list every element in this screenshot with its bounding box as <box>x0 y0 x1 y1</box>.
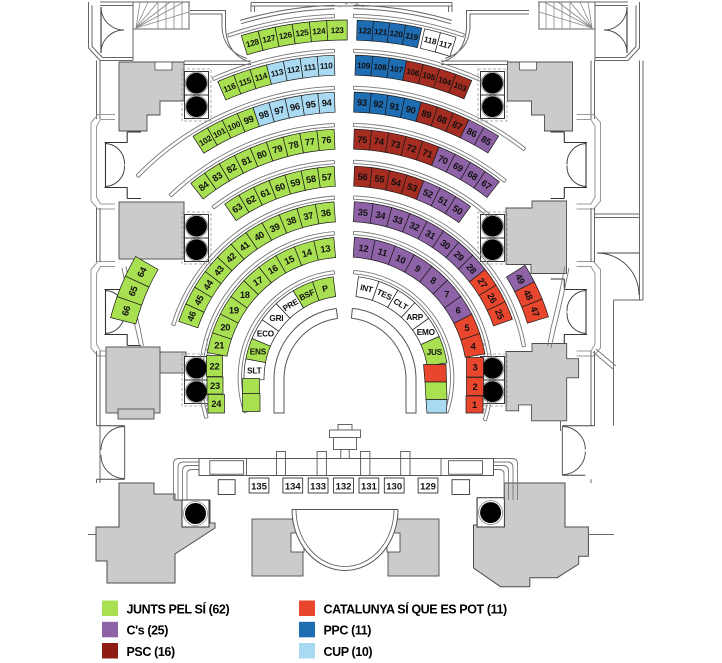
svg-text:JUS: JUS <box>427 348 443 357</box>
svg-text:110: 110 <box>320 61 334 71</box>
svg-text:75: 75 <box>357 135 368 146</box>
svg-text:ENS: ENS <box>250 347 267 356</box>
svg-text:ECO: ECO <box>257 330 275 339</box>
svg-text:PSC (16): PSC (16) <box>127 645 175 659</box>
svg-text:134: 134 <box>285 481 302 492</box>
svg-text:PPC (11): PPC (11) <box>324 624 372 638</box>
svg-text:109: 109 <box>357 61 371 71</box>
svg-text:SLT: SLT <box>247 366 261 375</box>
svg-text:12: 12 <box>358 243 369 254</box>
svg-text:GRI: GRI <box>269 314 283 323</box>
svg-text:24: 24 <box>211 399 222 409</box>
svg-text:5: 5 <box>464 323 469 333</box>
svg-text:56: 56 <box>357 172 368 183</box>
svg-text:1: 1 <box>472 400 477 410</box>
svg-text:36: 36 <box>320 208 331 219</box>
svg-text:55: 55 <box>374 173 385 185</box>
svg-text:58: 58 <box>305 174 317 186</box>
svg-text:121: 121 <box>374 27 389 37</box>
svg-text:57: 57 <box>321 172 332 183</box>
svg-text:35: 35 <box>357 207 368 218</box>
svg-text:76: 76 <box>321 135 332 146</box>
svg-text:CATALUNYA SÍ QUE ES POT (11): CATALUNYA SÍ QUE ES POT (11) <box>324 601 508 616</box>
svg-text:C's (25): C's (25) <box>127 624 169 638</box>
svg-text:135: 135 <box>251 481 268 492</box>
svg-text:77: 77 <box>304 136 315 147</box>
svg-text:125: 125 <box>295 28 310 39</box>
svg-text:6: 6 <box>456 306 461 316</box>
svg-text:93: 93 <box>357 98 368 109</box>
svg-text:108: 108 <box>373 62 388 72</box>
svg-text:JUNTS PEL SÍ (62): JUNTS PEL SÍ (62) <box>127 601 230 616</box>
svg-text:CUP (10): CUP (10) <box>324 645 373 659</box>
svg-text:95: 95 <box>305 99 316 110</box>
svg-text:ARP: ARP <box>406 313 423 322</box>
svg-text:132: 132 <box>336 481 352 492</box>
svg-text:131: 131 <box>361 481 378 492</box>
svg-text:22: 22 <box>210 361 220 371</box>
svg-text:23: 23 <box>210 381 220 391</box>
svg-text:92: 92 <box>373 99 384 110</box>
svg-text:13: 13 <box>320 243 331 254</box>
svg-text:91: 91 <box>389 101 401 113</box>
svg-text:123: 123 <box>331 26 345 35</box>
svg-text:133: 133 <box>310 481 326 492</box>
svg-text:96: 96 <box>289 101 301 113</box>
svg-text:111: 111 <box>303 62 317 72</box>
svg-text:73: 73 <box>389 139 401 151</box>
svg-text:124: 124 <box>312 26 326 36</box>
svg-text:20: 20 <box>220 323 230 333</box>
svg-text:21: 21 <box>214 341 224 351</box>
svg-text:94: 94 <box>321 98 333 109</box>
svg-text:3: 3 <box>473 363 478 373</box>
svg-text:18: 18 <box>240 290 250 300</box>
svg-text:122: 122 <box>358 26 372 36</box>
svg-text:130: 130 <box>386 481 402 492</box>
svg-text:129: 129 <box>420 481 436 492</box>
svg-text:19: 19 <box>229 306 239 316</box>
svg-text:2: 2 <box>473 382 478 392</box>
svg-text:EMO: EMO <box>417 328 436 337</box>
svg-text:7: 7 <box>444 290 449 300</box>
